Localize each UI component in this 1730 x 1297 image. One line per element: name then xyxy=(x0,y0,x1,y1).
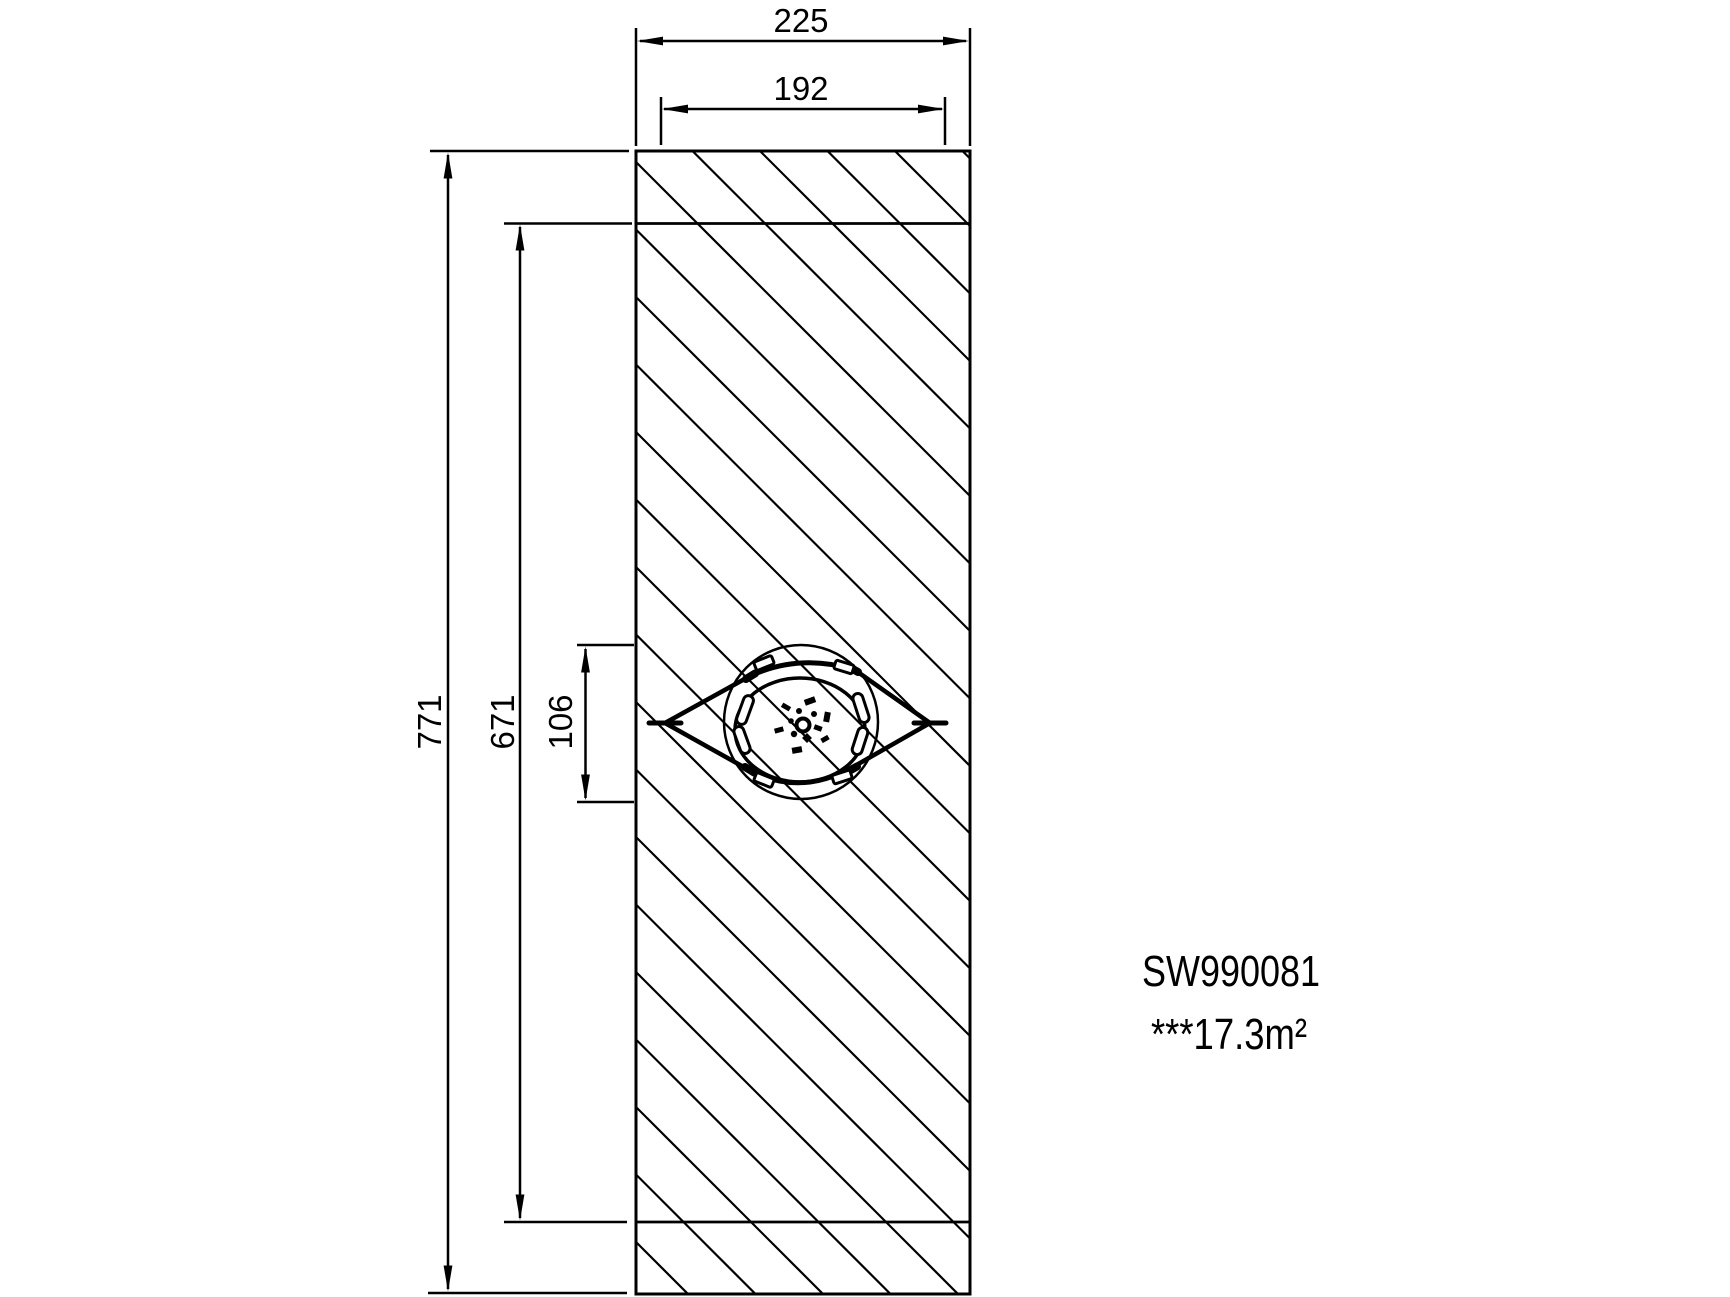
arrowhead-bottom xyxy=(516,1195,525,1221)
technical-drawing: 225 192 771 671 106 xyxy=(0,0,1730,1297)
hatch-line xyxy=(288,151,1431,1294)
arm-joint-lower-left xyxy=(745,767,754,773)
arrowhead-bottom xyxy=(444,1266,453,1292)
hatch-line xyxy=(963,151,1730,1294)
arrowhead-bottom xyxy=(581,775,590,801)
arm-joint-upper-left xyxy=(746,674,755,680)
foot-slot-left-lower xyxy=(733,725,752,755)
dimension-value-outer-width: 225 xyxy=(773,2,828,39)
dimension-value-inner-width: 192 xyxy=(773,70,828,107)
hatch-line xyxy=(760,151,1730,1294)
foot-slot-left-upper xyxy=(735,694,755,726)
hub-dot xyxy=(788,718,794,724)
dimension-equipment-size: 106 xyxy=(542,645,634,802)
arrowhead-top xyxy=(444,153,453,179)
hub-dot xyxy=(791,731,797,737)
hub-chip xyxy=(820,735,829,743)
arrowhead-right xyxy=(918,105,944,114)
foot-slot-right-lower xyxy=(851,726,869,756)
hub-chip xyxy=(792,746,803,754)
arrowhead-left xyxy=(662,105,688,114)
spinner-top-view xyxy=(649,645,946,799)
hatch-line xyxy=(0,151,756,1294)
hub-dot xyxy=(796,708,802,714)
hatch-line xyxy=(558,151,1701,1294)
hatch-line xyxy=(423,151,1566,1294)
arrowhead-right xyxy=(943,37,969,46)
arrowhead-top xyxy=(581,647,590,673)
dimension-value-inner-height: 671 xyxy=(484,694,521,749)
hub-dot xyxy=(811,711,817,717)
hub-chip xyxy=(813,724,822,731)
dimension-value-outer-height: 771 xyxy=(411,694,448,749)
hub-chip xyxy=(823,712,831,723)
hub-chip xyxy=(774,726,784,733)
arrowhead-left xyxy=(637,37,663,46)
drawing-canvas: 225 192 771 671 106 xyxy=(0,0,1730,1297)
hub-chip xyxy=(781,703,791,712)
hub-cluster xyxy=(774,696,831,754)
hatch-line xyxy=(0,151,958,1294)
hub-center-ring xyxy=(797,719,810,732)
dimension-inner-width: 192 xyxy=(661,70,945,145)
hatch-line xyxy=(18,151,1161,1294)
safety-area-label: ***17.3m² xyxy=(1151,1010,1307,1059)
dimension-value-equipment-size: 106 xyxy=(542,694,579,749)
hatch-line xyxy=(895,151,1730,1294)
hub-chip xyxy=(804,696,816,705)
hatch-line xyxy=(828,151,1730,1294)
arrowhead-top xyxy=(516,225,525,251)
product-code-label: SW990081 xyxy=(1142,947,1320,996)
hatch-line xyxy=(693,151,1730,1294)
